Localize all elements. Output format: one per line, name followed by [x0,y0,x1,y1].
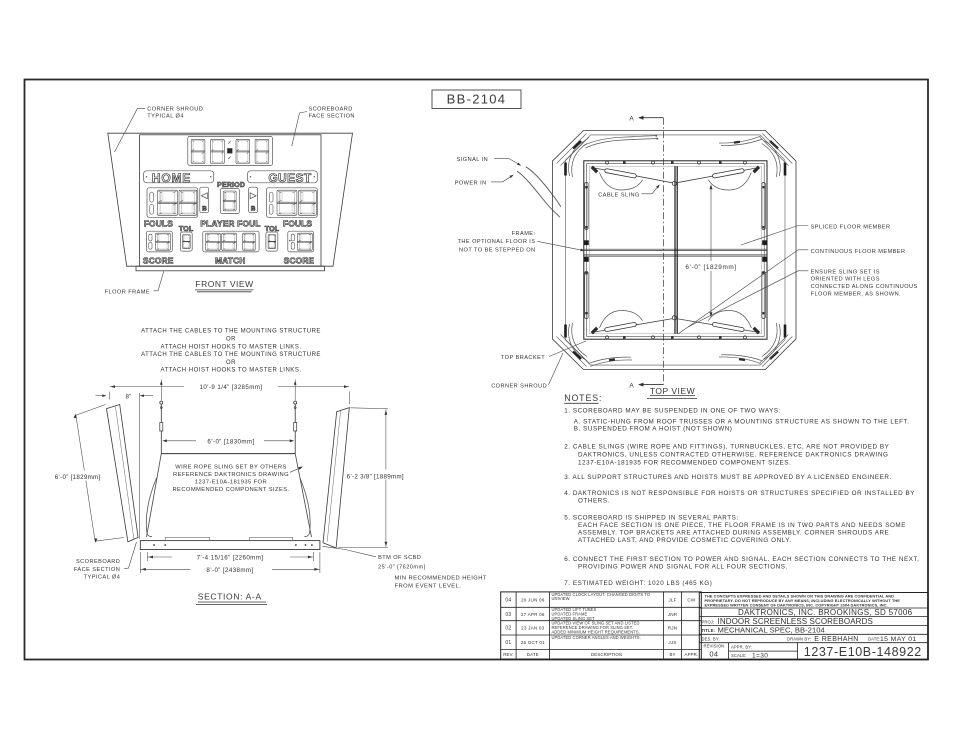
svg-text:SIGNAL IN: SIGNAL IN [457,157,489,163]
svg-text:CONTINUOUS FLOOR MEMBER: CONTINUOUS FLOOR MEMBER [811,249,906,255]
svg-text:TOP BRACKET: TOP BRACKET [501,355,545,361]
svg-text:6’-0” [1829mm]: 6’-0” [1829mm] [55,474,101,481]
svg-text:ATTACHED LAST, AND PROVIDE COS: ATTACHED LAST, AND PROVIDE COSMETIC COVE… [578,537,792,544]
svg-text:1=30: 1=30 [752,653,768,660]
svg-text:1. SCOREBOARD MAY BE SUSPENDE: 1. SCOREBOARD MAY BE SUSPENDED IN ONE OF… [564,407,781,414]
svg-text:UPDATED CORNER ANGLES AND WEIG: UPDATED CORNER ANGLES AND WEIGHTS. [552,635,641,640]
svg-text:SCALE:: SCALE: [731,653,747,658]
svg-text:PROVIDING POWER AND SIGNAL FOR: PROVIDING POWER AND SIGNAL FOR ALL FOUR … [578,563,788,570]
svg-text:CW: CW [687,597,696,602]
svg-text:RJN: RJN [668,626,678,631]
svg-text:TYPICAL Ø4: TYPICAL Ø4 [84,575,121,581]
svg-text:REV.: REV. [503,652,513,657]
svg-text:EXPRESSED WRITTEN CONSENT OF D: EXPRESSED WRITTEN CONSENT OF DAKTRONICS,… [705,602,888,607]
svg-text:B. SUSPENDED FROM A HOIST (NOT: B. SUSPENDED FROM A HOIST (NOT SHOWN) [574,425,733,432]
svg-text:SPLICED FLOOR MEMBER: SPLICED FLOOR MEMBER [811,225,891,231]
svg-text:A: A [629,382,634,389]
svg-text:SCOREBOARD: SCOREBOARD [76,559,120,565]
svg-text:PROJ:: PROJ: [702,619,715,624]
svg-text:OR: OR [226,336,236,342]
svg-text:FRONT VIEW: FRONT VIEW [195,279,253,289]
svg-text:UNIVIEW.: UNIVIEW. [552,596,571,601]
svg-text:EACH FACE SECTION IS ONE PIECE: EACH FACE SECTION IS ONE PIECE, THE FLOO… [578,522,906,529]
svg-text:OTHERS.: OTHERS. [578,498,610,505]
svg-text:CORNER SHROUD: CORNER SHROUD [491,383,547,389]
svg-text:04: 04 [709,650,718,659]
svg-text:CORNER SHROUD: CORNER SHROUD [147,106,203,112]
svg-text:REVISION: REVISION [703,644,724,649]
svg-text:ADDED MINIMUM HEIGHT REQUIREME: ADDED MINIMUM HEIGHT REQUIREMENTS. [552,629,640,634]
svg-text:6’-0” [1830mm]: 6’-0” [1830mm] [207,438,254,445]
svg-text:FACE SECTION: FACE SECTION [309,114,355,120]
svg-text:JJS: JJS [668,640,676,645]
svg-text:NOT TO BE STEPPED ON: NOT TO BE STEPPED ON [459,248,535,254]
svg-text:03: 03 [505,612,511,618]
svg-text:FLOOR FRAME: FLOOR FRAME [105,289,150,295]
svg-text:1237-E10B-148922: 1237-E10B-148922 [804,645,922,659]
svg-text:02: 02 [505,626,511,632]
svg-text:BTM OF SCBD: BTM OF SCBD [378,555,421,561]
svg-text:RECOMMENDED COMPONENT SIZES.: RECOMMENDED COMPONENT SIZES. [172,487,289,493]
svg-text:20 JUN 06: 20 JUN 06 [521,597,545,602]
svg-text:REFERENCE DAKTRONICS DRAWING: REFERENCE DAKTRONICS DRAWING [173,472,289,478]
svg-text:SCORE: SCORE [284,257,315,266]
svg-text:FLOOR MEMBER, AS SHOWN.: FLOOR MEMBER, AS SHOWN. [811,292,902,298]
svg-text:DRAWN BY:: DRAWN BY: [787,636,811,641]
svg-text:1237-E10A-181935 FOR: 1237-E10A-181935 FOR [195,480,267,486]
svg-text:FOULS: FOULS [283,220,312,229]
svg-text:8”: 8” [125,394,131,401]
svg-text:OR: OR [226,360,236,366]
svg-text:15 MAY 01: 15 MAY 01 [880,636,917,643]
svg-text:ENSURE SLING SET IS: ENSURE SLING SET IS [811,269,880,275]
svg-text:B: B [251,206,256,213]
svg-text:CABLE SLING: CABLE SLING [598,192,640,198]
svg-text:10’-9 1/4” [3285mm]: 10’-9 1/4” [3285mm] [200,384,263,391]
svg-text:APPR. BY:: APPR. BY: [731,644,752,649]
svg-text:SCORE: SCORE [143,257,174,266]
svg-text:25’-0” [7620mm]: 25’-0” [7620mm] [378,564,425,570]
svg-text:SECTION: A-A: SECTION: A-A [198,592,262,602]
svg-text:6. CONNECT THE FIRST SECTION: 6. CONNECT THE FIRST SECTION TO POWER AN… [564,556,919,563]
svg-text:WIRE ROPE SLING SET BY OTHERS: WIRE ROPE SLING SET BY OTHERS [175,465,287,471]
svg-text:25 OCT 01: 25 OCT 01 [521,640,545,645]
svg-text:04: 04 [505,597,511,603]
svg-text:ATTACH THE CABLES TO THE MOUNT: ATTACH THE CABLES TO THE MOUNTING STRUCT… [141,329,321,335]
svg-text:7. ESTIMATED WEIGHT: 1020 LB: 7. ESTIMATED WEIGHT: 1020 LBS (465 KG) [564,580,712,587]
svg-text:E REBHAHN: E REBHAHN [814,636,858,643]
svg-text:DAKTRONICS, UNLESS CONTRACTED: DAKTRONICS, UNLESS CONTRACTED OTHERWISE.… [578,452,889,459]
svg-text:01: 01 [505,640,511,646]
svg-text:JLF: JLF [668,597,676,602]
svg-text:TYPICAL Ø4: TYPICAL Ø4 [147,114,184,120]
svg-text:2. CABLE SLINGS (WIRE ROPE AN: 2. CABLE SLINGS (WIRE ROPE AND FITTINGS)… [564,443,889,450]
svg-text:FACE SECTION: FACE SECTION [74,567,120,573]
svg-text:DESCRIPTION: DESCRIPTION [591,652,622,657]
svg-text:ATTACH HOIST HOOKS TO MASTER L: ATTACH HOIST HOOKS TO MASTER LINKS. [161,368,302,374]
svg-text:APPR.: APPR. [685,652,699,657]
svg-text:PLAYER FOUL: PLAYER FOUL [200,220,260,229]
svg-text:4. DAKTRONICS IS NOT RESPONSI: 4. DAKTRONICS IS NOT RESPONSIBLE FOR HOI… [564,490,915,497]
svg-text:B: B [202,206,207,213]
svg-text:DAKTRONICS, INC. BROOKINGS, S: DAKTRONICS, INC. BROOKINGS, SD 57006 [738,608,913,617]
svg-text:8’-0” [2438mm]: 8’-0” [2438mm] [206,567,253,574]
svg-text:GUEST: GUEST [268,171,312,185]
svg-text:FOULS: FOULS [144,220,173,229]
svg-text:DATE:: DATE: [868,636,881,641]
svg-text:DATE: DATE [527,652,539,657]
svg-text:A: A [629,115,634,122]
svg-text:BY: BY [669,652,675,657]
svg-text:INDOOR SCREENLESS SCOREBOARDS: INDOOR SCREENLESS SCOREBOARDS [718,617,873,626]
svg-text:BB-2104: BB-2104 [447,92,507,107]
svg-text:CONNECTED ALONG CONTINUOUS: CONNECTED ALONG CONTINUOUS [811,284,918,290]
svg-text:7’-4 15/16” [2260mm]: 7’-4 15/16” [2260mm] [197,555,264,562]
svg-text:FRAME:: FRAME: [512,231,536,237]
svg-text:TOP VIEW: TOP VIEW [650,386,695,396]
svg-text:THE OPTIONAL FLOOR IS: THE OPTIONAL FLOOR IS [458,239,536,245]
svg-text:NOTES:: NOTES: [564,393,602,403]
svg-text:6’-0” [1829mm]: 6’-0” [1829mm] [685,264,736,271]
svg-text:27 APR 06: 27 APR 06 [521,612,545,617]
svg-text:HOME: HOME [152,171,191,185]
svg-text:MATCH: MATCH [215,257,245,266]
svg-text:ASSEMBLY. TOP BRACKETS ARE AT: ASSEMBLY. TOP BRACKETS ARE ATTACHED DURI… [578,530,889,537]
svg-text:3. ALL SUPPORT STRUCTURES AND: 3. ALL SUPPORT STRUCTURES AND HOISTS MUS… [564,474,892,481]
svg-text:JNR: JNR [668,612,678,617]
svg-text:SCOREBOARD: SCOREBOARD [309,106,353,112]
svg-text:DES. BY:: DES. BY: [702,636,720,641]
svg-text:ATTACH THE CABLES TO THE MOUNT: ATTACH THE CABLES TO THE MOUNTING STRUCT… [141,352,321,358]
svg-text:23 JAN 03: 23 JAN 03 [521,626,544,631]
svg-text:TITLE:: TITLE: [702,628,716,633]
svg-text:ORIENTED WITH LEGS: ORIENTED WITH LEGS [811,277,880,283]
svg-text:POWER IN: POWER IN [455,180,487,186]
svg-text:6’-2 3/8” [1889mm]: 6’-2 3/8” [1889mm] [347,473,404,480]
svg-text:ATTACH HOIST HOOKS TO MASTER L: ATTACH HOIST HOOKS TO MASTER LINKS. [161,344,302,350]
svg-text:FROM EVENT LEVEL.: FROM EVENT LEVEL. [395,584,462,590]
svg-text:5. SCOREBOARD IS SHIPPED IN S: 5. SCOREBOARD IS SHIPPED IN SEVERAL PART… [564,514,739,521]
svg-text:1237-E10A-181935 FOR RECOMMEND: 1237-E10A-181935 FOR RECOMMENDED COMPONE… [578,460,791,467]
svg-text:MIN RECOMMENDED HEIGHT: MIN RECOMMENDED HEIGHT [395,576,487,582]
svg-text:MECHANICAL SPEC, BB-2104: MECHANICAL SPEC, BB-2104 [718,626,825,635]
